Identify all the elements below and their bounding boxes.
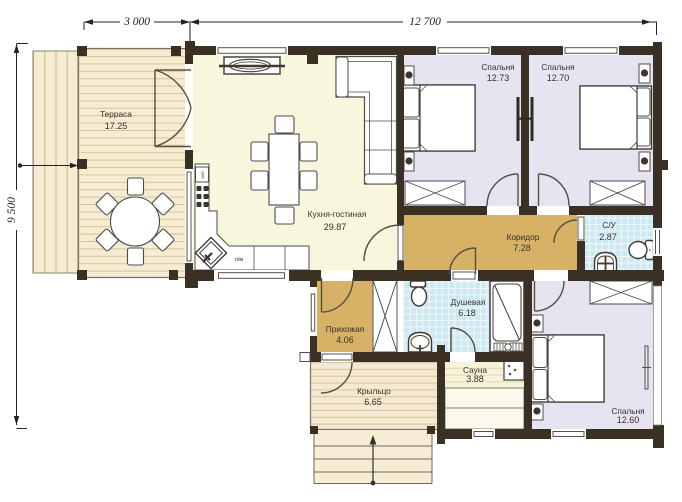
svg-text:6.65: 6.65 xyxy=(364,397,382,407)
svg-text:12 700: 12 700 xyxy=(409,16,441,28)
svg-text:2.87: 2.87 xyxy=(599,232,617,242)
svg-text:7.28: 7.28 xyxy=(513,243,531,253)
svg-text:12.73: 12.73 xyxy=(487,73,510,83)
svg-text:хол: хол xyxy=(200,171,205,179)
svg-text:29.87: 29.87 xyxy=(324,222,347,232)
svg-text:Душевая: Душевая xyxy=(451,297,486,307)
svg-text:12.70: 12.70 xyxy=(547,73,570,83)
svg-text:12.60: 12.60 xyxy=(617,415,640,425)
svg-text:3 000: 3 000 xyxy=(123,16,150,28)
svg-text:Крыльцо: Крыльцо xyxy=(357,386,391,396)
svg-text:3.88: 3.88 xyxy=(466,374,484,384)
svg-text:Кухня-гостиная: Кухня-гостиная xyxy=(308,209,367,219)
svg-text:п/м: п/м xyxy=(235,257,244,263)
svg-text:17.25: 17.25 xyxy=(105,121,128,131)
svg-text:Терраса: Терраса xyxy=(100,109,132,119)
svg-text:9 500: 9 500 xyxy=(6,197,18,223)
svg-text:4.06: 4.06 xyxy=(336,335,354,345)
svg-text:Коридор: Коридор xyxy=(507,232,540,242)
svg-text:С/У: С/У xyxy=(602,220,616,230)
svg-text:Спальня: Спальня xyxy=(481,62,514,72)
svg-text:Спальня: Спальня xyxy=(541,62,574,72)
svg-text:Прихожая: Прихожая xyxy=(326,324,364,334)
svg-text:6.18: 6.18 xyxy=(458,308,476,318)
